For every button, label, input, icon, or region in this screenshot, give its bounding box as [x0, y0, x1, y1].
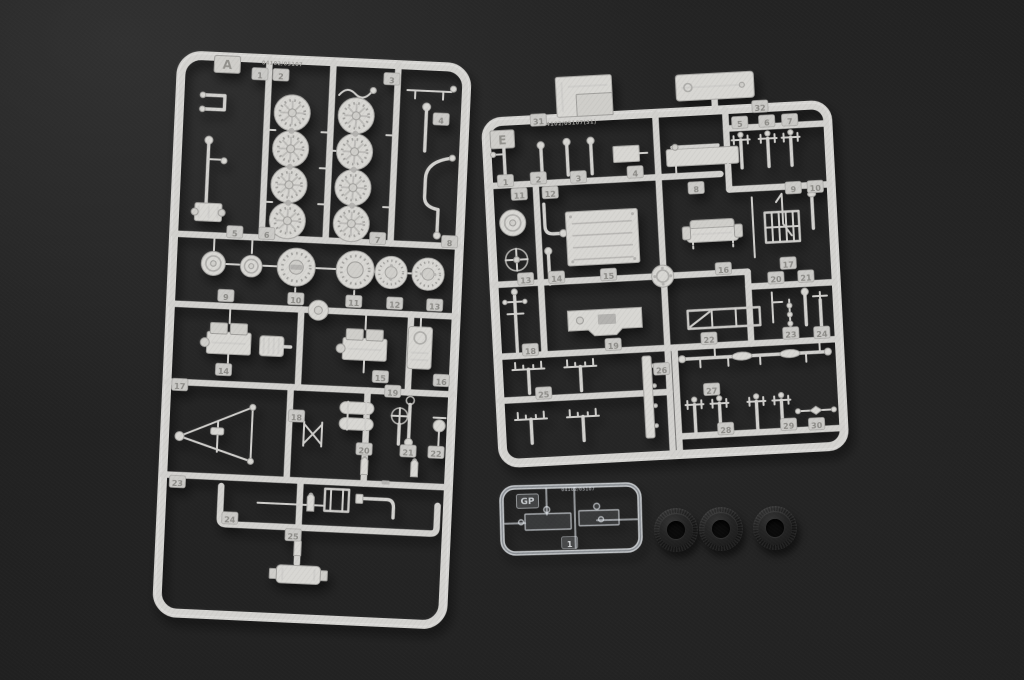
engine-deck — [666, 141, 739, 175]
part-number: 1 — [567, 540, 573, 549]
tow-frame — [174, 401, 256, 465]
steering-cross — [505, 248, 528, 271]
crank-handle — [339, 86, 376, 98]
part-number: 18 — [291, 413, 303, 423]
sprue-gp-clear: GP 04102/05107 1 — [496, 478, 646, 560]
part-number: 26 — [656, 366, 668, 376]
part-number: 3 — [389, 76, 395, 85]
rubber-tire-1 — [654, 508, 698, 552]
part-number-tag: 24 — [222, 512, 239, 525]
part-number-tag: 2 — [273, 68, 290, 81]
part-number: 7 — [375, 236, 381, 245]
part-number-tag: 15 — [372, 370, 389, 383]
part-number-tag: 4 — [433, 113, 450, 126]
part-number: 5 — [232, 229, 238, 238]
part-number: 14 — [218, 367, 230, 377]
part-number: 21 — [402, 448, 414, 458]
flat-plate — [613, 145, 648, 163]
stepped-hull-box — [555, 75, 613, 118]
part-number-tag: 11 — [345, 295, 362, 308]
sprue-gp-letter: GP — [520, 497, 535, 507]
sprue-a-letter-tab: A — [214, 55, 241, 73]
part-number: 22 — [430, 449, 442, 458]
road-wheel-chain-1 — [262, 94, 332, 241]
part-number: 16 — [718, 266, 730, 276]
part-number: 9 — [223, 293, 229, 302]
part-number-tag: 10 — [807, 180, 824, 193]
rubber-tire-2 — [699, 507, 743, 551]
signal-post — [502, 288, 530, 352]
part-number-tag: 24 — [814, 326, 831, 339]
ball-t-posts — [685, 392, 792, 433]
elbow-pipe — [355, 494, 394, 518]
part-number-tag: 8 — [688, 181, 705, 194]
part-number: 10 — [810, 184, 822, 194]
part-number: 20 — [770, 275, 782, 285]
part-number-tag: 14 — [215, 363, 232, 376]
part-number: 19 — [387, 388, 399, 398]
part-number: 6 — [264, 231, 270, 240]
hull-tub — [567, 307, 642, 337]
sprue-gp-part-tags: 1 — [561, 536, 577, 549]
part-number-tag: 13 — [426, 299, 443, 312]
part-number-tag: 1 — [497, 174, 514, 187]
tow-rod — [407, 84, 457, 100]
part-number-tag: 18 — [288, 410, 305, 423]
part-number-tag: 19 — [605, 338, 622, 351]
part-number-tag: 6 — [758, 115, 775, 128]
sprue-a: A 04102/05107 — [147, 45, 477, 633]
part-number-tag: 25 — [535, 387, 552, 400]
part-number-tag: 7 — [369, 232, 386, 245]
part-number-tag: 13 — [517, 272, 534, 285]
part-number-tag: 28 — [717, 422, 734, 435]
part-number: 2 — [278, 72, 284, 81]
part-number-tag: 3 — [570, 171, 587, 184]
part-number-tag: 9 — [785, 181, 802, 194]
part-number-tag: 7 — [781, 113, 798, 126]
part-number-tag: 1 — [561, 536, 577, 549]
part-number-tag: 16 — [433, 374, 450, 387]
part-number: 15 — [603, 272, 615, 282]
part-number: 8 — [693, 185, 699, 194]
part-number: 6 — [764, 118, 770, 127]
part-number: 14 — [551, 274, 563, 284]
part-number: 22 — [703, 336, 715, 346]
part-number: 15 — [375, 374, 387, 384]
part-number: 16 — [435, 378, 447, 388]
part-number-tag: 3 — [384, 72, 401, 85]
part-number: 5 — [737, 120, 743, 129]
part-number: 1 — [257, 71, 263, 80]
part-number-tag: 17 — [780, 257, 797, 270]
part-number-tag: 21 — [400, 445, 417, 458]
part-number-tag: 9 — [218, 289, 235, 302]
part-number: 24 — [816, 330, 828, 340]
part-number: 17 — [783, 260, 795, 270]
elbow-lever — [544, 203, 567, 238]
part-number-tag: 26 — [653, 362, 670, 375]
t-pins — [731, 129, 801, 168]
part-number-tag: 23 — [169, 475, 186, 488]
part-number-tag: 23 — [783, 327, 800, 340]
stowage-box — [675, 71, 754, 101]
part-number-tag: 29 — [780, 418, 797, 431]
kit-contents-photo: A 04102/05107 — [0, 0, 1024, 680]
part-number: 27 — [706, 386, 718, 396]
part-number-tag: 1 — [252, 68, 269, 81]
sprue-gp-mold-number: 04102/05107 — [561, 486, 595, 492]
part-number-tag: 5 — [731, 116, 748, 129]
part-number: 28 — [720, 426, 732, 436]
square-bracket — [324, 489, 349, 512]
part-number: 29 — [783, 421, 795, 431]
lever-and-winch — [191, 135, 229, 221]
part-number-tag: 30 — [808, 417, 825, 430]
part-number-tag: 4 — [627, 166, 644, 179]
part-number-tag: 15 — [600, 268, 617, 281]
part-number: 30 — [811, 421, 823, 431]
part-number: 13 — [429, 302, 441, 311]
part-number: 18 — [525, 347, 537, 357]
sprue-gp-letter-tab: GP — [516, 494, 538, 509]
part-number: 12 — [544, 190, 556, 200]
part-number-tag: 10 — [288, 292, 305, 305]
gates — [228, 309, 421, 375]
hub-cap — [308, 300, 329, 321]
sprue-a-letter: A — [222, 58, 233, 72]
part-number: 25 — [287, 532, 299, 542]
part-number: 10 — [290, 296, 302, 306]
part-number-tag: 14 — [548, 271, 565, 284]
part-number-tag: 31 — [530, 114, 547, 127]
engine-block-left — [200, 322, 252, 355]
sprue-e-letter-tab: E — [490, 130, 515, 149]
louvered-panel — [565, 208, 640, 266]
transfer-case — [407, 326, 433, 369]
part-number-tag: 19 — [384, 385, 401, 398]
part-number: 3 — [575, 174, 581, 183]
fan-pulley — [651, 265, 674, 288]
part-number: 1 — [503, 178, 509, 187]
sprue-e-letter: E — [498, 133, 507, 147]
part-number-tag: 20 — [356, 443, 373, 456]
part-number: 4 — [438, 117, 444, 126]
diamond-link — [795, 405, 836, 415]
part-number: 12 — [389, 300, 401, 309]
engine-block-right — [336, 328, 388, 361]
part-number: 11 — [514, 191, 526, 201]
bench-seat — [682, 218, 743, 251]
air-filter — [499, 209, 526, 236]
part-number-tag: 5 — [227, 226, 244, 239]
part-number: 23 — [172, 479, 184, 488]
pulley-block — [432, 418, 445, 447]
part-number-tag: 18 — [522, 343, 539, 356]
part-number: 23 — [785, 330, 797, 340]
part-number-tag: 12 — [386, 297, 403, 310]
sprue-e: E 04102/05107(31) — [475, 51, 856, 474]
part-number: 20 — [358, 446, 370, 456]
part-number: 2 — [535, 175, 541, 184]
part-number-tag: 22 — [428, 446, 445, 459]
part-number-tag: 27 — [703, 383, 720, 396]
x-bracket — [303, 422, 322, 447]
rubber-tire-3 — [753, 506, 797, 550]
part-number-tag: 17 — [172, 378, 189, 391]
part-number: 24 — [224, 515, 236, 525]
part-number: 11 — [348, 299, 360, 309]
bullet-pins — [360, 456, 418, 477]
part-number-tag: 20 — [768, 271, 785, 284]
part-number: 25 — [538, 390, 550, 400]
road-wheel-chain-2 — [326, 97, 397, 244]
part-number-tag: 2 — [530, 172, 547, 185]
gear-lever — [421, 103, 431, 151]
gearbox — [259, 336, 291, 357]
part-number: 7 — [787, 117, 793, 126]
hand-wheel — [390, 408, 408, 445]
part-number: 31 — [533, 117, 545, 127]
part-number: 4 — [632, 169, 638, 178]
exhaust-pipe — [423, 154, 456, 240]
part-number-tag: 11 — [511, 188, 528, 201]
part-number: 21 — [800, 273, 812, 283]
part-number: 8 — [446, 239, 452, 248]
part-number: 19 — [608, 342, 620, 352]
part-number-tag: 32 — [752, 100, 769, 113]
part-number: 32 — [754, 104, 766, 114]
part-number-tag: 21 — [798, 270, 815, 283]
part-number: 9 — [790, 185, 796, 194]
part-number-tag: 6 — [258, 227, 275, 240]
pipe-fittings — [199, 92, 225, 113]
part-number: 17 — [174, 382, 186, 391]
part-number-tag: 12 — [542, 186, 559, 199]
part-number-tag: 8 — [441, 235, 458, 248]
part-number-tag: 25 — [285, 528, 302, 541]
part-number-tag: 16 — [715, 262, 732, 275]
part-number: 13 — [520, 276, 532, 286]
part-number-tag: 22 — [701, 332, 718, 345]
